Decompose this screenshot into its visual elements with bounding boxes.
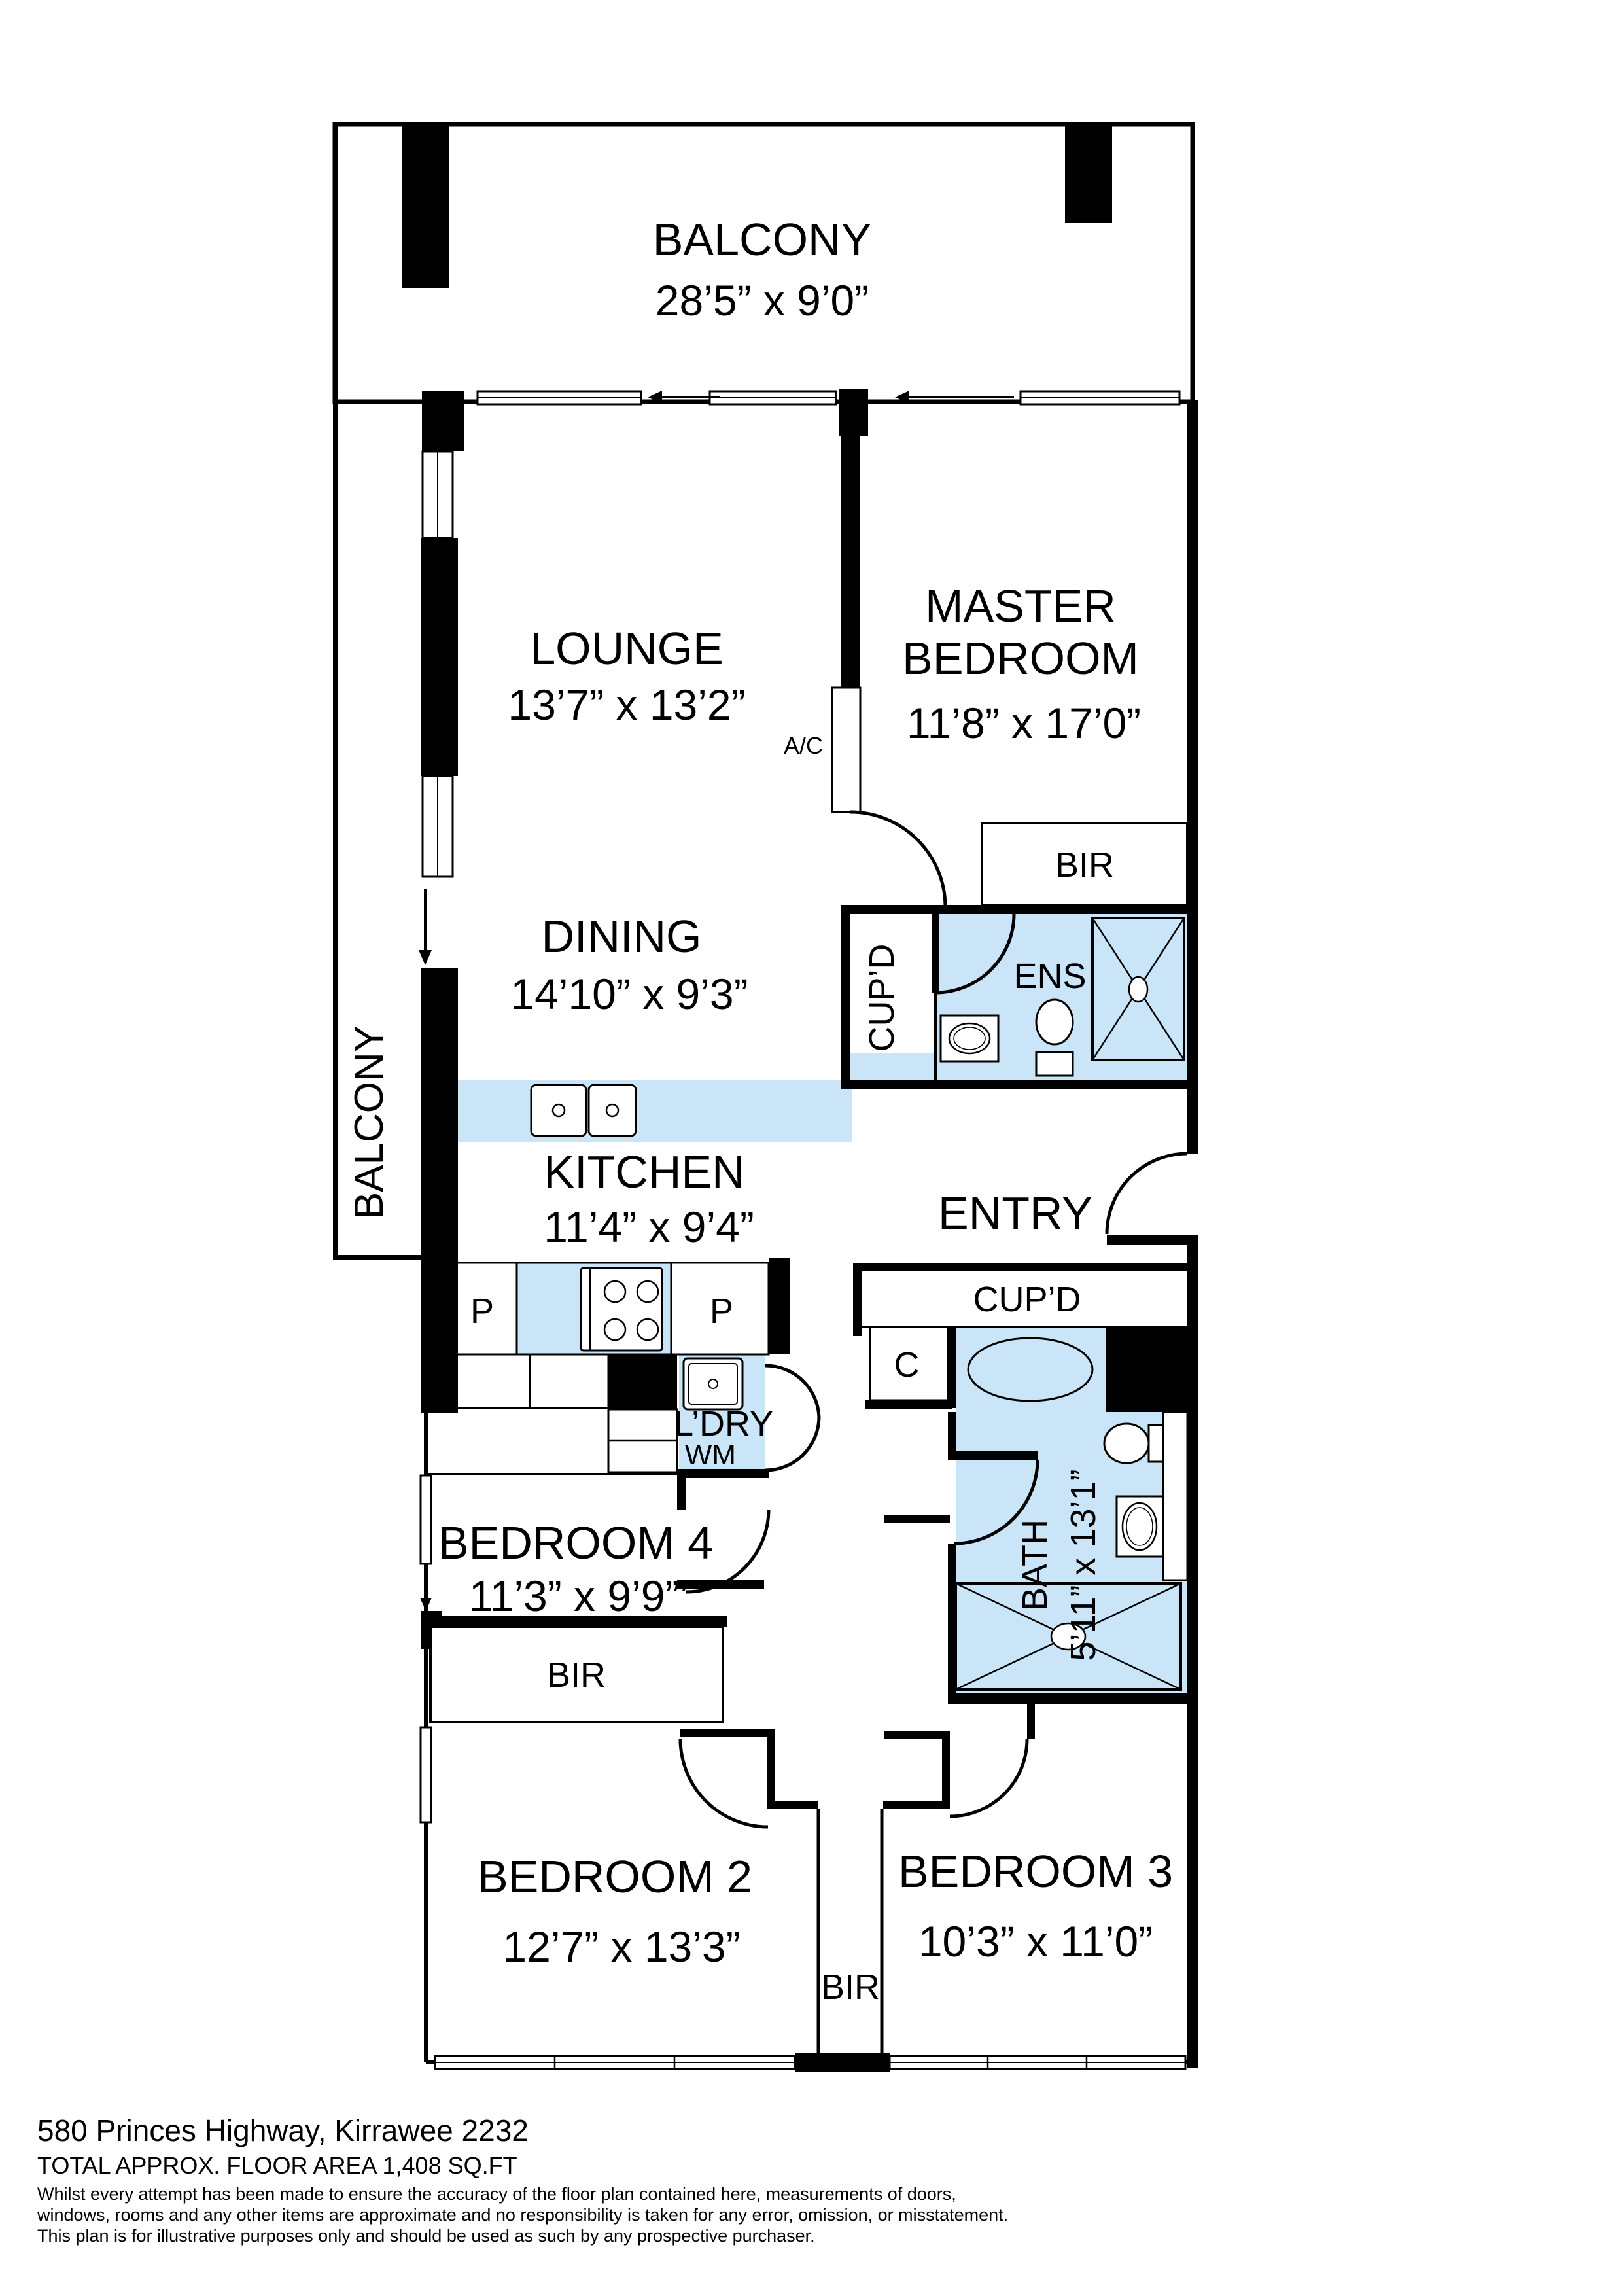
bedroom2-dims: 12’7” x 13’3” [502,1922,740,1971]
bath-bottom-wall [948,1693,1193,1704]
bathtub-zone [956,1327,1106,1412]
bedroom4-right-wall [677,1474,686,1510]
footer-disclaimer-1: Whilst every attempt has been made to en… [37,2184,956,2204]
footer-disclaimer-3: This plan is for illustrative purposes o… [37,2226,815,2246]
bath-vanity [1163,1412,1187,1580]
entry-door-stub [1107,1235,1193,1245]
hall-end-wall-left [767,1729,775,1809]
entry-cupd-label: CUP’D [973,1280,1081,1319]
bedroom4-window [421,1475,431,1564]
c-closet-label: C [894,1345,920,1385]
master-bir-label: BIR [1055,845,1114,885]
laundry-label: L’DRY [674,1404,773,1443]
lounge-label: LOUNGE [530,623,724,674]
divide-wall [841,400,860,688]
master-bottom-wall [841,905,1193,914]
ens-sink [941,1016,998,1061]
bedroom3-jog-wall [1027,1693,1035,1739]
wm-label: WM [685,1439,736,1471]
bath-left-wall-upper [948,1412,956,1460]
lounge-corner-wall [422,391,464,451]
dining-slider-arrow-head [419,950,432,965]
balcony-left-label: BALCONY [347,1025,392,1219]
pantry-left-label: P [470,1292,494,1331]
lounge-dims: 13’7” x 13’2” [508,680,745,729]
cupd-top-wall [853,1263,1193,1271]
dining-label: DINING [542,911,702,962]
entry-door-arc [1107,1154,1187,1234]
cupd-left-cap [853,1263,862,1336]
bedroom3-door-wall [884,1731,950,1739]
ens-bottom-wall [841,1080,1193,1089]
hall-niche-wall [884,1515,950,1523]
left-wall [419,451,458,2062]
master-dims: 11’8” x 17’0” [907,699,1141,747]
balcony-top-dims: 28’5” x 9’0” [655,276,869,325]
bottom-wall [426,2053,1193,2072]
pantry-right-label: P [710,1292,733,1331]
ac-unit [832,688,860,812]
bedroom2-door-wall [680,1729,767,1737]
kitchen-dims: 11’4” x 9’4” [544,1203,754,1251]
hall-end-wall-right [942,1731,950,1809]
floor-plan: BALCONY 28’5” x 9’0” BALCONY LOUNGE 13’7… [0,0,1623,2296]
c-closet-bottom-wall [865,1400,952,1409]
footer-disclaimer-2: windows, rooms and any other items are a… [37,2205,1008,2225]
laundry-door-arc-bottom [765,1417,819,1470]
bedroom23-bir-label: BIR [821,1968,880,2007]
bath-toilet [1104,1424,1163,1463]
bath-corner-wall-mass [1106,1327,1187,1412]
ens-label: ENS [1013,957,1086,996]
bedroom3-door-arc [950,1739,1027,1816]
bir-connector-right [883,1801,950,1809]
entry-label: ENTRY [938,1188,1092,1239]
kitchen-wall-chunk [608,1354,677,1409]
bedroom2-door-arc [680,1739,768,1827]
cooktop [581,1268,662,1351]
footer-area: TOTAL APPROX. FLOOR AREA 1,408 SQ.FT [37,2152,517,2179]
master-label-1: MASTER [925,580,1116,631]
right-wall-lower [1187,1235,1198,2068]
ens-toilet [1036,1000,1073,1076]
kitchen-end-wall [769,1258,790,1354]
floor-plan-page: BALCONY 28’5” x 9’0” BALCONY LOUNGE 13’7… [0,0,1623,2296]
island-sink [531,1085,636,1136]
footer-address: 580 Princes Highway, Kirrawee 2232 [37,2113,529,2147]
master-door-arc [850,812,945,907]
bedroom4-label: BEDROOM 4 [438,1517,713,1568]
tub-left-wall [948,1327,956,1408]
ac-label: A/C [784,732,823,759]
top-wall-sliders [422,389,1179,451]
bir-connector-left [767,1801,818,1809]
left-wall-segment-1 [421,538,458,776]
right-wall-upper [1187,400,1198,1154]
bedroom3-dims: 10’3” x 11’0” [918,1917,1153,1966]
ensuite-floor-strip [850,1053,935,1080]
kitchen-label: KITCHEN [544,1146,744,1197]
bedroom4-dims: 11’3” x 9’9”’ [469,1572,689,1620]
left-wall-segment-2 [421,968,458,1413]
ens-cupd-label: CUP’D [862,944,901,1051]
bath-door-stub [956,1451,1038,1460]
bedroom2-bir-label: BIR [547,1655,606,1695]
balcony-pillar-left [402,126,449,288]
left-balcony-bottom-wall [333,1255,426,1260]
laundry-door-arc-top [765,1366,819,1419]
bath-dims: 5’11” x 13’1” [1064,1469,1103,1661]
left-balcony-wall [333,124,338,1260]
laundry-trough [684,1358,742,1409]
bedroom3-label: BEDROOM 3 [898,1846,1173,1897]
bath-label: BATH [1015,1519,1055,1611]
kitchen-island [451,1080,852,1142]
bedroom2-label: BEDROOM 2 [478,1851,752,1902]
footer: 580 Princes Highway, Kirrawee 2232 TOTAL… [37,2113,1008,2246]
balcony-pillar-right [1065,126,1112,223]
master-label-2: BEDROOM [902,633,1139,684]
ens-door-leaf [932,914,939,993]
bath-sink [1117,1496,1163,1557]
cupd-left-wall [841,905,850,1089]
bedroom2-side-window [421,1727,431,1822]
bedroom4-slider-arrow-head [420,1598,432,1611]
bottom-wall-chunk [795,2053,890,2072]
balcony-top-label: BALCONY [653,214,872,265]
bench-cabinets [447,1354,608,1408]
dining-dims: 14’10” x 9’3” [510,970,748,1018]
